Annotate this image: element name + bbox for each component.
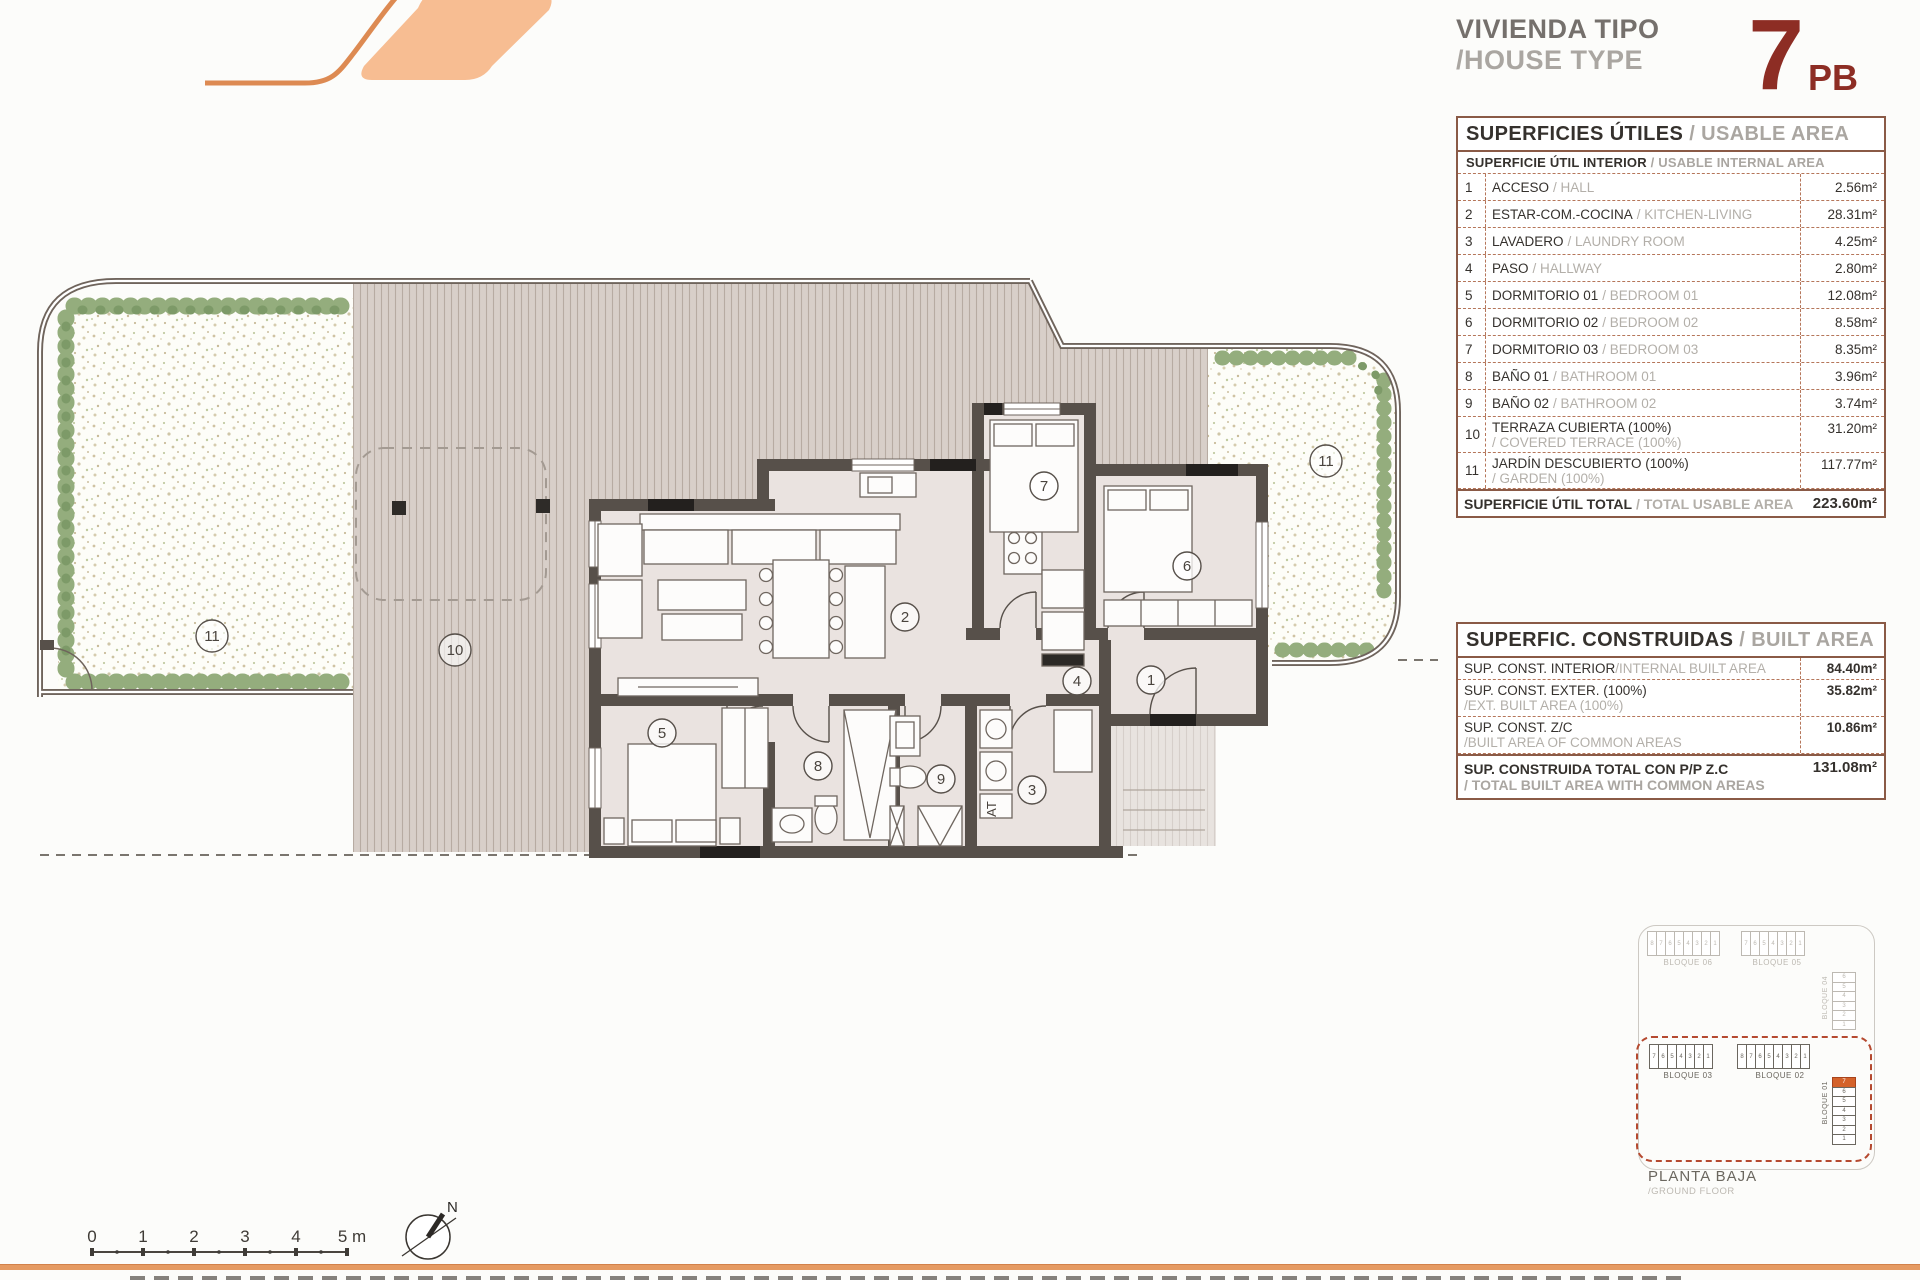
table-row: 4PASO/ HALLWAY2.80m² [1458, 255, 1884, 282]
table-row: 9BAÑO 02/ BATHROOM 023.74m² [1458, 390, 1884, 417]
room-label-jardin-right: 11 [1310, 445, 1342, 477]
svg-text:4: 4 [1073, 673, 1081, 690]
keyplan-unit-cell: 1 [1832, 1020, 1856, 1031]
table-row: 6DORMITORIO 02/ BEDROOM 028.58m² [1458, 309, 1884, 336]
svg-text:2: 2 [901, 609, 909, 626]
svg-text:10: 10 [447, 642, 464, 659]
room-label-dorm3: 7 [1030, 472, 1058, 500]
bloque-05: 7654321 BLOQUE 05 [1742, 931, 1812, 967]
washbasin [772, 808, 812, 842]
svg-text:5 m: 5 m [338, 1227, 366, 1246]
coffee-table [658, 580, 746, 610]
built-area-table: SUPERFIC. CONSTRUIDAS / BUILT AREA SUP. … [1456, 622, 1886, 800]
room-label-lavadero: 3 [1018, 776, 1046, 804]
table-row: 8BAÑO 01/ BATHROOM 013.96m² [1458, 363, 1884, 390]
svg-text:1: 1 [138, 1227, 147, 1246]
svg-text:4: 4 [291, 1227, 300, 1246]
keyplan-unit-cell: 1 [1800, 1044, 1810, 1069]
room-label-dorm2: 6 [1173, 552, 1201, 580]
room-label-paso: 4 [1063, 667, 1091, 695]
svg-text:8: 8 [814, 758, 822, 775]
room-label-jardin-left: 11 [196, 620, 228, 652]
usable-area-table: SUPERFICIES ÚTILES / USABLE AREA SUPERFI… [1456, 116, 1886, 518]
floorplan-page: { "header": { "title_line1": "VIVIENDA T… [0, 0, 1920, 1280]
entry-porch [1111, 726, 1216, 846]
kitchen-tall-unit [1042, 570, 1084, 608]
room-label-bano1: 8 [804, 752, 832, 780]
bloque-06: 87654321 BLOQUE 06 [1648, 931, 1728, 967]
north-arrow-icon: N [402, 1199, 458, 1259]
room-label-terraza: 10 [439, 634, 471, 666]
table-row: SUP. CONST. EXTER. (100%)/EXT. BUILT ARE… [1458, 680, 1884, 717]
table-row: 7DORMITORIO 03/ BEDROOM 038.35m² [1458, 336, 1884, 363]
svg-text:3: 3 [240, 1227, 249, 1246]
shower [844, 710, 896, 840]
svg-text:9: 9 [937, 771, 945, 788]
usable-table-header: SUPERFICIES ÚTILES / USABLE AREA [1458, 118, 1884, 152]
room-label-acceso: 1 [1137, 666, 1165, 694]
table-row: SUP. CONST. Z/C/BUILT AREA OF COMMON ARE… [1458, 717, 1884, 754]
footer-cropped-text [130, 1276, 1690, 1280]
svg-text:11: 11 [204, 628, 220, 645]
table-row: 3LAVADERO/ LAUNDRY ROOM4.25m² [1458, 228, 1884, 255]
keyplan-unit-cell: 1 [1832, 1134, 1856, 1145]
svg-text:11: 11 [1318, 453, 1334, 470]
bloque-03: 7654321 BLOQUE 03 [1650, 1044, 1726, 1080]
room-label-estar: 2 [891, 603, 919, 631]
bloque-02: 87654321 BLOQUE 02 [1738, 1044, 1822, 1080]
svg-text:1: 1 [1147, 672, 1155, 689]
table-row: 5DORMITORIO 01/ BEDROOM 0112.08m² [1458, 282, 1884, 309]
terrace-column [536, 499, 550, 513]
terrace-column [392, 501, 406, 515]
dryer [980, 752, 1012, 790]
svg-text:N: N [447, 1199, 458, 1216]
svg-text:2: 2 [189, 1227, 198, 1246]
scale-bar: 0 1 2 3 4 5 m [87, 1227, 366, 1256]
bloque-01-label: BLOQUE 01 [1822, 1081, 1829, 1124]
site-key-plan: 87654321 BLOQUE 06 7654321 BLOQUE 05 654… [1630, 918, 1890, 1193]
svg-text:5: 5 [658, 725, 666, 742]
built-total-row: SUP. CONSTRUIDA TOTAL CON P/P Z.C/ TOTAL… [1458, 754, 1884, 798]
table-row: 10TERRAZA CUBIERTA (100%)/ COVERED TERRA… [1458, 417, 1884, 453]
laundry-counter [1054, 710, 1092, 772]
table-row: SUP. CONST. INTERIOR/INTERNAL BUILT AREA… [1458, 658, 1884, 680]
usable-table-subheader: SUPERFICIE ÚTIL INTERIOR / USABLE INTERN… [1458, 152, 1884, 174]
keyplan-unit-cell: 1 [1795, 931, 1805, 956]
keyplan-caption-en: /GROUND FLOOR [1648, 1186, 1735, 1197]
bloque-04-label: BLOQUE 04 [1822, 976, 1829, 1019]
footer-orange-rule [0, 1264, 1920, 1270]
keyplan-unit-cell: 1 [1710, 931, 1720, 956]
built-table-header: SUPERFIC. CONSTRUIDAS / BUILT AREA [1458, 624, 1884, 658]
toilet [815, 802, 837, 834]
svg-text:0: 0 [87, 1227, 96, 1246]
header: VIVIENDA TIPO /HOUSE TYPE 7 PB [1456, 14, 1886, 106]
svg-text:6: 6 [1183, 558, 1191, 575]
usable-total-row: SUPERFICIE ÚTIL TOTAL/ TOTAL USABLE AREA… [1458, 489, 1884, 516]
table-row: 11JARDÍN DESCUBIERTO (100%)/ GARDEN (100… [1458, 453, 1884, 489]
keyplan-unit-cell: 1 [1703, 1044, 1713, 1069]
bloque-01: 7654321 [1832, 1078, 1856, 1145]
kitchen-island [845, 566, 885, 658]
laundry-at-tag: AT [984, 801, 999, 817]
keyplan-caption-es: PLANTA BAJA [1648, 1168, 1757, 1185]
house-type-number: 7 [1748, 14, 1804, 96]
house-type-badge: 7 PB [1748, 14, 1858, 96]
bloque-04: 654321 [1832, 973, 1856, 1030]
svg-text:7: 7 [1040, 478, 1048, 495]
dining-table [773, 560, 829, 658]
shower [918, 806, 962, 846]
room-label-dorm1: 5 [648, 719, 676, 747]
room-label-bano2: 9 [927, 765, 955, 793]
brand-logo [205, 0, 552, 83]
house-type-suffix: PB [1808, 60, 1858, 96]
washer [980, 710, 1012, 748]
table-row: 1ACCESO/ HALL2.56m² [1458, 174, 1884, 201]
svg-text:3: 3 [1028, 782, 1036, 799]
sofa [640, 514, 900, 530]
table-row: 2ESTAR-COM.-COCINA/ KITCHEN-LIVING28.31m… [1458, 201, 1884, 228]
